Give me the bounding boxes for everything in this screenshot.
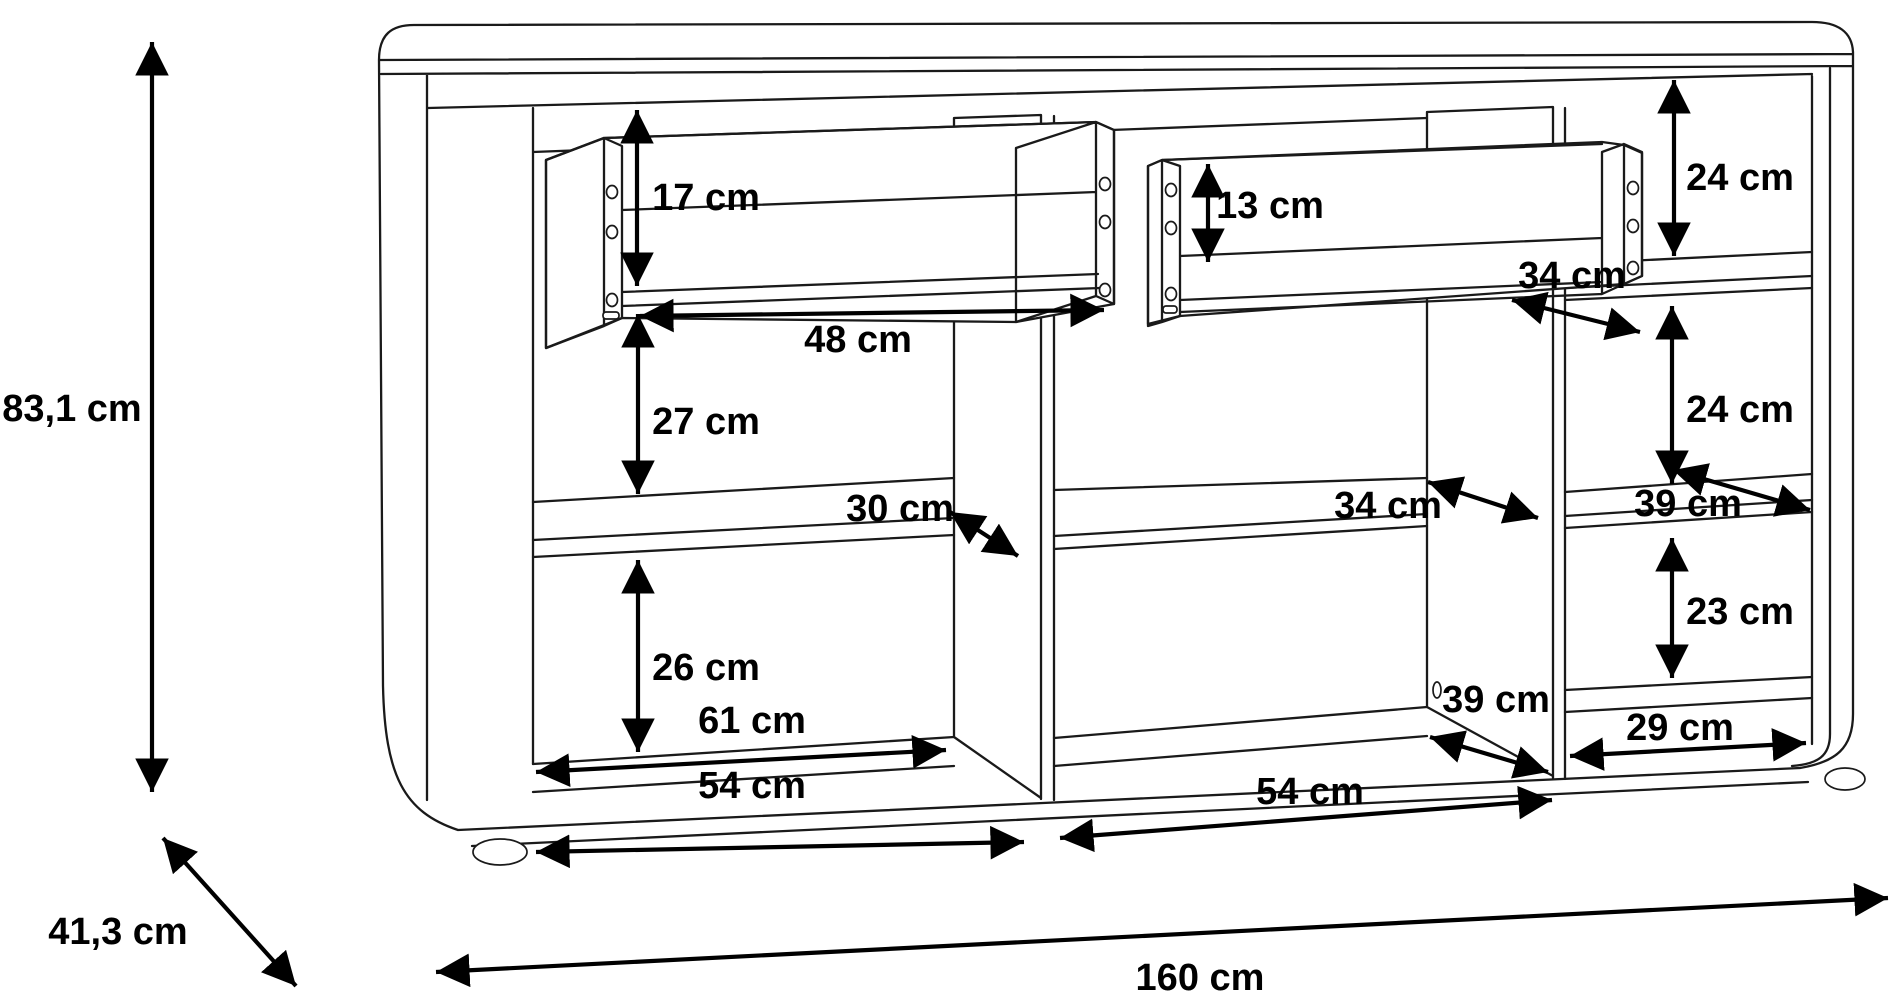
dimension-label: 39 cm bbox=[1634, 483, 1742, 525]
screw-hole bbox=[1100, 178, 1111, 191]
dim-right-shelf-depth: 39 cm bbox=[1634, 470, 1810, 525]
dimension-label: 54 cm bbox=[1256, 771, 1364, 813]
screw-hole bbox=[1166, 222, 1177, 235]
right-foot bbox=[1825, 768, 1865, 790]
diagram-canvas: 83,1 cm 41,3 cm 160 cm 17 cm 48 cm 27 cm… bbox=[0, 0, 1898, 1002]
dim-right-top-height: 24 cm bbox=[1674, 80, 1794, 256]
dimension-label: 34 cm bbox=[1518, 255, 1626, 297]
screw-hole bbox=[1628, 182, 1639, 195]
shelf-pin-hole bbox=[1433, 682, 1441, 698]
screw-hole bbox=[607, 186, 618, 199]
dimension-label: 24 cm bbox=[1686, 389, 1794, 431]
dimension-label: 48 cm bbox=[804, 319, 912, 361]
left-foot bbox=[473, 839, 527, 865]
dimension-label: 23 cm bbox=[1686, 591, 1794, 633]
dimension-label: 83,1 cm bbox=[2, 388, 141, 430]
dimension-label: 34 cm bbox=[1334, 485, 1442, 527]
screw-hole bbox=[1100, 284, 1111, 297]
dimension-label: 17 cm bbox=[652, 177, 760, 219]
dimension-label: 30 cm bbox=[846, 488, 954, 530]
dim-right-width: 29 cm bbox=[1570, 707, 1806, 756]
dimension-label: 54 cm bbox=[698, 765, 806, 807]
screw-hole bbox=[1628, 220, 1639, 233]
drawer-middle bbox=[1148, 142, 1642, 326]
dimension-arrow bbox=[1512, 300, 1640, 332]
dimension-label: 27 cm bbox=[652, 401, 760, 443]
dimension-label: 39 cm bbox=[1442, 679, 1550, 721]
dim-mid-floor-depth: 39 cm bbox=[1430, 679, 1550, 772]
sideboard-dimension-diagram: 83,1 cm 41,3 cm 160 cm 17 cm 48 cm 27 cm… bbox=[0, 0, 1898, 1002]
runner-slot bbox=[603, 312, 619, 319]
screw-hole bbox=[1166, 288, 1177, 301]
dim-left-gap-upper: 27 cm bbox=[638, 314, 760, 494]
dimension-label: 26 cm bbox=[652, 647, 760, 689]
screw-hole bbox=[1166, 184, 1177, 197]
dimension-arrow bbox=[950, 512, 1018, 556]
dimension-label: 29 cm bbox=[1626, 707, 1734, 749]
dimension-label: 24 cm bbox=[1686, 157, 1794, 199]
screw-hole bbox=[1628, 262, 1639, 275]
dim-overall-height: 83,1 cm bbox=[2, 42, 152, 792]
runner-slot bbox=[1163, 306, 1177, 313]
screw-hole bbox=[607, 294, 618, 307]
dim-left-shelf-depth: 30 cm bbox=[846, 488, 1018, 556]
dimension-label: 13 cm bbox=[1216, 185, 1324, 227]
dimension-label: 41,3 cm bbox=[48, 911, 187, 953]
dim-right-mid-height: 24 cm bbox=[1672, 306, 1794, 484]
dimension-label: 61 cm bbox=[698, 700, 806, 742]
dim-right-lower-height: 23 cm bbox=[1672, 538, 1794, 678]
dim-drawer-mid-depth: 34 cm bbox=[1512, 255, 1640, 332]
dimension-arrow bbox=[1428, 482, 1538, 518]
dim-overall-depth: 41,3 cm bbox=[48, 838, 296, 986]
screw-hole bbox=[607, 226, 618, 239]
dim-overall-width: 160 cm bbox=[436, 898, 1888, 999]
dim-left-width-back: 61 cm bbox=[536, 700, 946, 772]
dimension-label: 160 cm bbox=[1136, 957, 1265, 999]
dim-mid-width: 54 cm bbox=[1060, 771, 1552, 838]
dimension-arrow bbox=[536, 842, 1024, 852]
screw-hole bbox=[1100, 216, 1111, 229]
dim-mid-shelf-depth: 34 cm bbox=[1334, 482, 1538, 527]
